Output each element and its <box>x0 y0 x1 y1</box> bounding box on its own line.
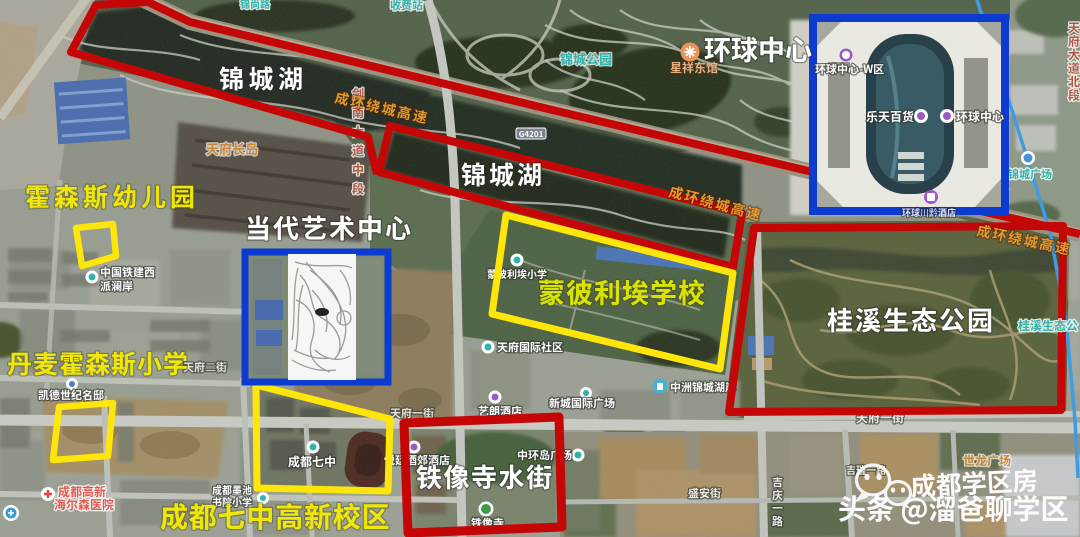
svg-text:环球中心: 环球中心 <box>956 108 1004 125</box>
svg-text:头条 @溜爸聊学区: 头条 @溜爸聊学区 <box>838 488 1069 528</box>
svg-text:当代艺术中心: 当代艺术中心 <box>245 209 413 246</box>
svg-text:桂溪生态公园: 桂溪生态公园 <box>827 301 995 338</box>
svg-text:环球中心-W区: 环球中心-W区 <box>815 61 884 77</box>
svg-text:天府长岛: 天府长岛 <box>206 139 258 158</box>
svg-text:海尔森医院: 海尔森医院 <box>54 496 114 513</box>
svg-text:丹麦霍森斯小学: 丹麦霍森斯小学 <box>7 345 189 381</box>
svg-text:天府国际社区: 天府国际社区 <box>497 339 563 355</box>
svg-text:成都七中高新校区: 成都七中高新校区 <box>160 496 390 536</box>
svg-text:环球川黔酒店: 环球川黔酒店 <box>902 206 956 219</box>
svg-text:收费站: 收费站 <box>390 0 423 13</box>
svg-text:道: 道 <box>352 142 364 159</box>
svg-text:盛安街: 盛安街 <box>688 485 721 501</box>
svg-text:G4201: G4201 <box>519 129 544 140</box>
svg-text:中洲锦城湖岸: 中洲锦城湖岸 <box>670 379 736 395</box>
svg-text:锦城公园: 锦城公园 <box>560 49 612 68</box>
svg-text:路: 路 <box>772 513 783 529</box>
svg-text:锦城湖: 锦城湖 <box>461 156 545 192</box>
svg-text:成都七中: 成都七中 <box>288 453 336 470</box>
svg-text:段: 段 <box>1068 87 1080 104</box>
svg-text:锦城广场: 锦城广场 <box>1008 166 1052 182</box>
svg-text:段: 段 <box>352 180 364 197</box>
svg-text:天府二街: 天府二街 <box>183 359 227 375</box>
svg-text:中: 中 <box>352 161 364 178</box>
svg-text:铁像寺水街: 铁像寺水街 <box>416 458 554 495</box>
svg-text:霍森斯幼儿园: 霍森斯幼儿园 <box>25 178 199 214</box>
svg-text:凯德世纪名邸: 凯德世纪名邸 <box>38 387 104 403</box>
svg-text:锦尚路: 锦尚路 <box>240 0 270 11</box>
svg-text:桂溪生态公: 桂溪生态公 <box>1018 317 1078 334</box>
svg-text:蒙彼利埃学校: 蒙彼利埃学校 <box>538 272 706 311</box>
svg-text:新城国际广场: 新城国际广场 <box>549 395 615 411</box>
svg-text:环球中心: 环球中心 <box>704 29 812 68</box>
svg-text:派澜岸: 派澜岸 <box>100 278 133 294</box>
svg-text:锦城湖: 锦城湖 <box>219 60 308 96</box>
svg-text:乐天百货: 乐天百货 <box>866 108 914 125</box>
